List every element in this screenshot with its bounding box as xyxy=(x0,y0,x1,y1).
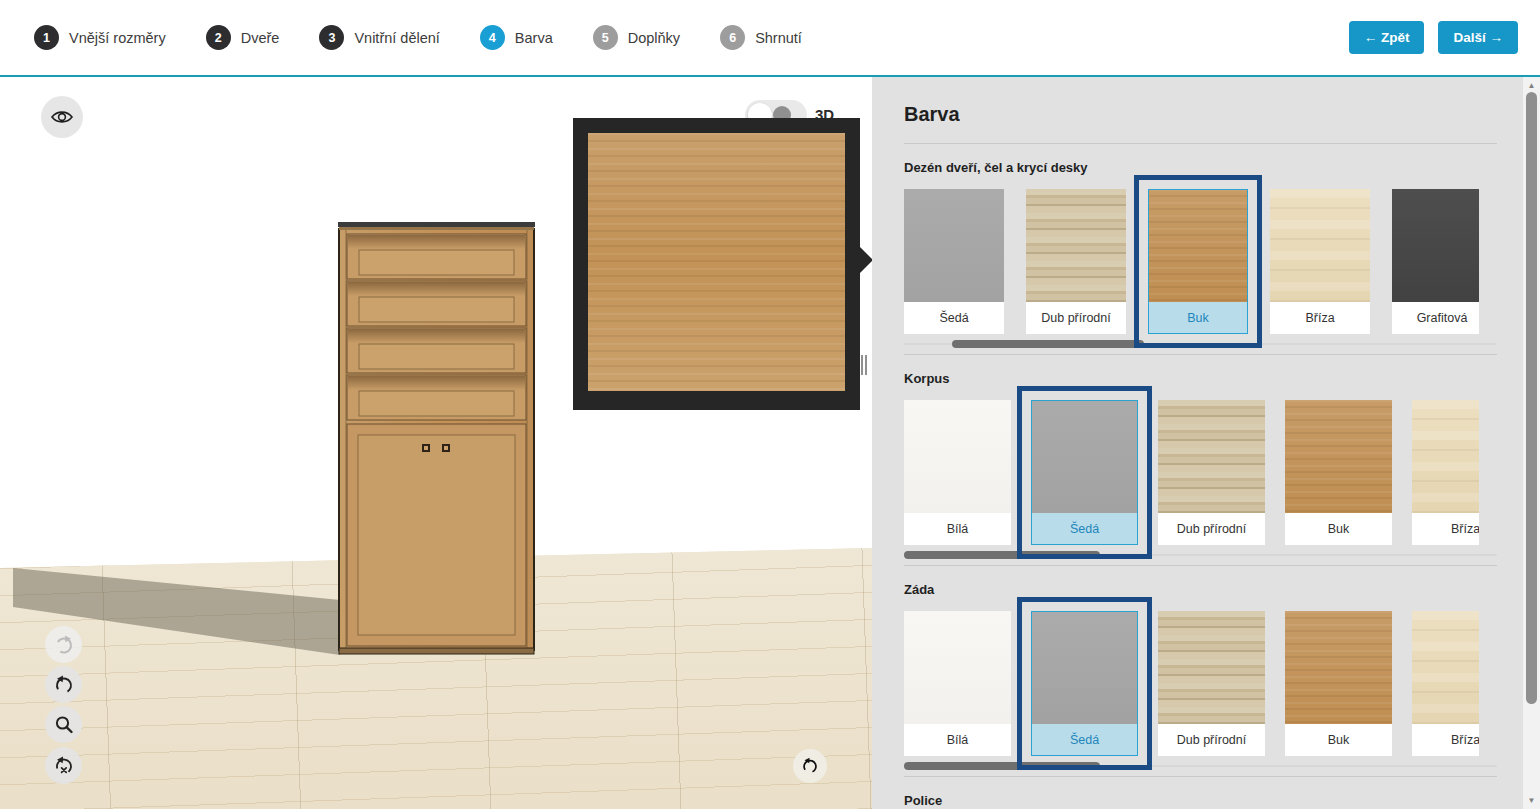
swatch[interactable]: Šedá xyxy=(1031,611,1138,756)
redo-icon xyxy=(53,634,75,656)
texture-preview-beech xyxy=(588,133,845,391)
color-section: Záda Bílá Šedá Dub přírodní Buk Bříza xyxy=(904,566,1523,777)
swatch-texture xyxy=(1392,189,1479,302)
stepper-step[interactable]: 3 Vnitřní dělení xyxy=(319,25,439,50)
step-label: Dveře xyxy=(241,30,280,46)
panel-scrollbar-thumb[interactable] xyxy=(1526,92,1537,704)
swatch-texture xyxy=(1158,400,1265,513)
step-label: Vnitřní dělení xyxy=(354,30,439,46)
step-circle: 5 xyxy=(593,25,618,50)
swatch-label: Grafitová xyxy=(1392,302,1479,334)
undo-icon xyxy=(53,674,75,696)
step-number: 4 xyxy=(489,31,496,45)
swatch-label: Šedá xyxy=(1031,724,1138,756)
swatch-label: Bílá xyxy=(904,724,1011,756)
swatch-label: Buk xyxy=(1148,302,1248,334)
swatch[interactable]: Bílá xyxy=(904,611,1011,756)
swatch[interactable]: Bříza xyxy=(1412,400,1479,545)
rotate-scene-button[interactable] xyxy=(793,749,827,783)
swatch[interactable]: Dub přírodní xyxy=(1158,611,1265,756)
swatch[interactable]: Šedá xyxy=(1031,400,1138,545)
step-circle: 6 xyxy=(720,25,745,50)
scene-canvas[interactable]: 3D xyxy=(0,77,872,809)
magnifier-icon xyxy=(53,714,75,736)
swatch-label: Šedá xyxy=(904,302,1004,334)
swatch-row-clip: Bílá Šedá Dub přírodní Buk Bříza xyxy=(886,593,1479,774)
scroll-down-arrow-icon[interactable]: ▼ xyxy=(1523,796,1540,805)
visibility-button[interactable] xyxy=(41,96,83,138)
swatch[interactable]: Buk xyxy=(1148,189,1248,334)
swatch[interactable]: Buk xyxy=(1285,611,1392,756)
cabinet-model[interactable] xyxy=(338,222,535,655)
eye-icon xyxy=(50,108,74,126)
panel-title: Barva xyxy=(904,103,1523,126)
swatch-label: Buk xyxy=(1285,513,1392,545)
stepper-step[interactable]: 1 Vnější rozměry xyxy=(34,25,166,50)
step-circle: 2 xyxy=(206,25,231,50)
swatch-texture xyxy=(1270,189,1370,302)
swatch-label: Dub přírodní xyxy=(1026,302,1126,334)
swatch[interactable]: Šedá xyxy=(904,189,1004,334)
swatch-texture xyxy=(1026,189,1126,302)
drawer-1 xyxy=(347,234,526,279)
swatch-texture xyxy=(904,611,1011,724)
color-section: Korpus Bílá Šedá Dub přírodní Buk Bříza xyxy=(904,355,1523,566)
zoom-button[interactable] xyxy=(45,706,82,743)
header-buttons: ← Zpět Další → xyxy=(1349,21,1518,54)
swatch-label: Bříza xyxy=(1412,513,1479,545)
swatch-row-clip: Bílá Šedá Dub přírodní Buk Bříza xyxy=(886,382,1479,563)
stepper: 1 Vnější rozměry 2 Dveře 3 Vnitřní dělen… xyxy=(34,25,802,50)
popup-arrow xyxy=(859,246,872,274)
step-label: Barva xyxy=(515,30,553,46)
swatch-texture xyxy=(1148,189,1248,302)
step-number: 5 xyxy=(602,31,609,45)
color-section: Police xyxy=(904,777,1523,809)
step-label: Shrnutí xyxy=(755,30,802,46)
swatch-row: Šedá Dub přírodní Buk Bříza Grafitová xyxy=(904,189,1479,334)
step-circle: 1 xyxy=(34,25,59,50)
step-circle: 3 xyxy=(319,25,344,50)
panel-resize-handle[interactable] xyxy=(861,355,869,375)
drawer-3 xyxy=(347,328,526,373)
step-label: Doplňky xyxy=(628,30,680,46)
stepper-step[interactable]: 2 Dveře xyxy=(206,25,280,50)
swatch-texture xyxy=(904,189,1004,302)
swatch-label: Buk xyxy=(1285,724,1392,756)
swatch[interactable]: Bílá xyxy=(904,400,1011,545)
swatch[interactable]: Bříza xyxy=(1412,611,1479,756)
swatch[interactable]: Dub přírodní xyxy=(1158,400,1265,545)
rotate-icon xyxy=(800,756,820,776)
color-section: Dezén dveří, čel a krycí desky Šedá Dub … xyxy=(904,144,1523,355)
next-button[interactable]: Další → xyxy=(1438,21,1518,54)
wizard-header: 1 Vnější rozměry 2 Dveře 3 Vnitřní dělen… xyxy=(0,0,1540,77)
panel-scrollbar[interactable]: ▲ ▼ xyxy=(1523,77,1540,809)
undo-button[interactable] xyxy=(45,666,82,703)
swatch-row-clip: Šedá Dub přírodní Buk Bříza Grafitová xyxy=(886,171,1479,352)
swatch-texture xyxy=(1031,400,1138,513)
step-number: 2 xyxy=(215,31,222,45)
step-number: 6 xyxy=(729,31,736,45)
swatch-texture xyxy=(1031,611,1138,724)
step-number: 3 xyxy=(328,31,335,45)
swatch-texture xyxy=(904,400,1011,513)
door xyxy=(347,424,526,646)
swatch-row-clip xyxy=(886,804,1479,809)
redo-button[interactable] xyxy=(45,626,82,663)
swatch[interactable]: Dub přírodní xyxy=(1026,189,1126,334)
reset-view-button[interactable] xyxy=(45,747,82,784)
swatch-texture xyxy=(1285,611,1392,724)
scroll-up-arrow-icon[interactable]: ▲ xyxy=(1523,81,1540,90)
stepper-step[interactable]: 4 Barva xyxy=(480,25,553,50)
step-number: 1 xyxy=(43,31,50,45)
drawer-2 xyxy=(347,281,526,326)
stepper-step[interactable]: 5 Doplňky xyxy=(593,25,680,50)
swatch-label: Bílá xyxy=(904,513,1011,545)
swatch[interactable]: Buk xyxy=(1285,400,1392,545)
swatch-texture xyxy=(1412,611,1479,724)
panel-sections: Dezén dveří, čel a krycí desky Šedá Dub … xyxy=(904,144,1523,809)
swatch-label: Dub přírodní xyxy=(1158,724,1265,756)
swatch[interactable]: Grafitová xyxy=(1392,189,1479,334)
texture-preview-popup xyxy=(573,118,860,410)
drawer-4 xyxy=(347,375,526,420)
swatch[interactable]: Bříza xyxy=(1270,189,1370,334)
swatch-texture xyxy=(1412,400,1479,513)
swatch-label: Bříza xyxy=(1270,302,1370,334)
step-label: Vnější rozměry xyxy=(69,30,166,46)
swatch-row: Bílá Šedá Dub přírodní Buk Bříza xyxy=(904,611,1479,756)
swatch-label: Dub přírodní xyxy=(1158,513,1265,545)
stepper-step[interactable]: 6 Shrnutí xyxy=(720,25,802,50)
step-circle: 4 xyxy=(480,25,505,50)
swatch-texture xyxy=(1158,611,1265,724)
reset-view-icon xyxy=(53,755,75,777)
swatch-label: Šedá xyxy=(1031,513,1138,545)
back-button[interactable]: ← Zpět xyxy=(1349,21,1425,54)
swatch-label: Bříza xyxy=(1412,724,1479,756)
swatch-texture xyxy=(1285,400,1392,513)
color-panel: Barva Dezén dveří, čel a krycí desky Šed… xyxy=(872,77,1523,809)
swatch-row: Bílá Šedá Dub přírodní Buk Bříza xyxy=(904,400,1479,545)
